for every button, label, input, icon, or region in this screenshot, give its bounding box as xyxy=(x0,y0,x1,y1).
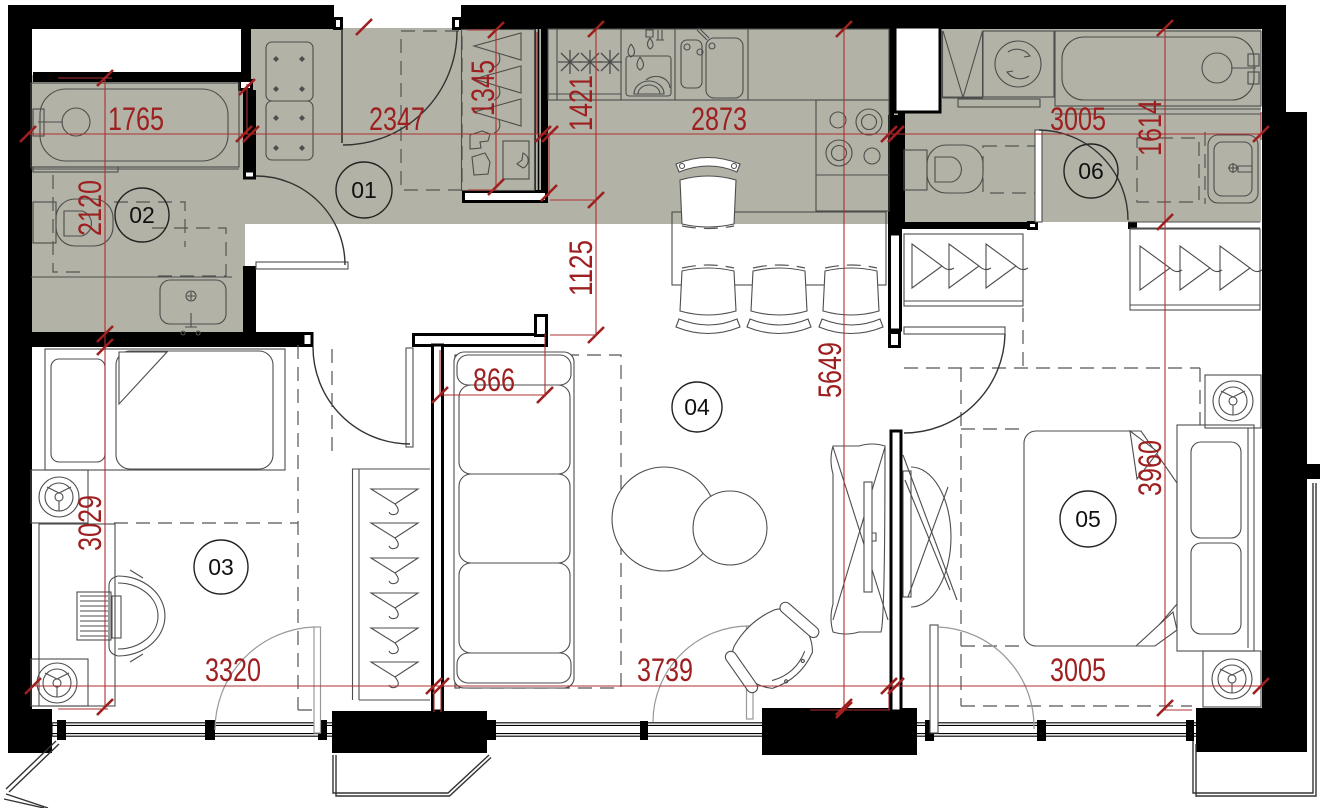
svg-text:1765: 1765 xyxy=(108,101,164,137)
svg-text:3739: 3739 xyxy=(637,652,693,688)
svg-text:3320: 3320 xyxy=(205,652,261,688)
svg-text:1614: 1614 xyxy=(1132,100,1168,156)
svg-text:1421: 1421 xyxy=(563,75,599,131)
svg-text:05: 05 xyxy=(1075,506,1101,532)
svg-text:01: 01 xyxy=(351,177,377,203)
svg-text:06: 06 xyxy=(1078,158,1104,184)
svg-text:3005: 3005 xyxy=(1050,652,1106,688)
svg-text:2120: 2120 xyxy=(72,180,108,236)
svg-text:866: 866 xyxy=(473,362,515,398)
svg-text:03: 03 xyxy=(208,554,234,580)
svg-text:3960: 3960 xyxy=(1132,440,1168,496)
svg-text:2347: 2347 xyxy=(369,101,425,137)
svg-text:2873: 2873 xyxy=(691,101,747,137)
svg-text:3029: 3029 xyxy=(72,495,108,551)
svg-text:04: 04 xyxy=(684,394,710,420)
svg-text:1345: 1345 xyxy=(465,60,501,116)
svg-text:3005: 3005 xyxy=(1050,101,1106,137)
svg-text:02: 02 xyxy=(129,202,155,228)
svg-text:1125: 1125 xyxy=(563,240,599,296)
svg-text:5649: 5649 xyxy=(812,342,848,398)
